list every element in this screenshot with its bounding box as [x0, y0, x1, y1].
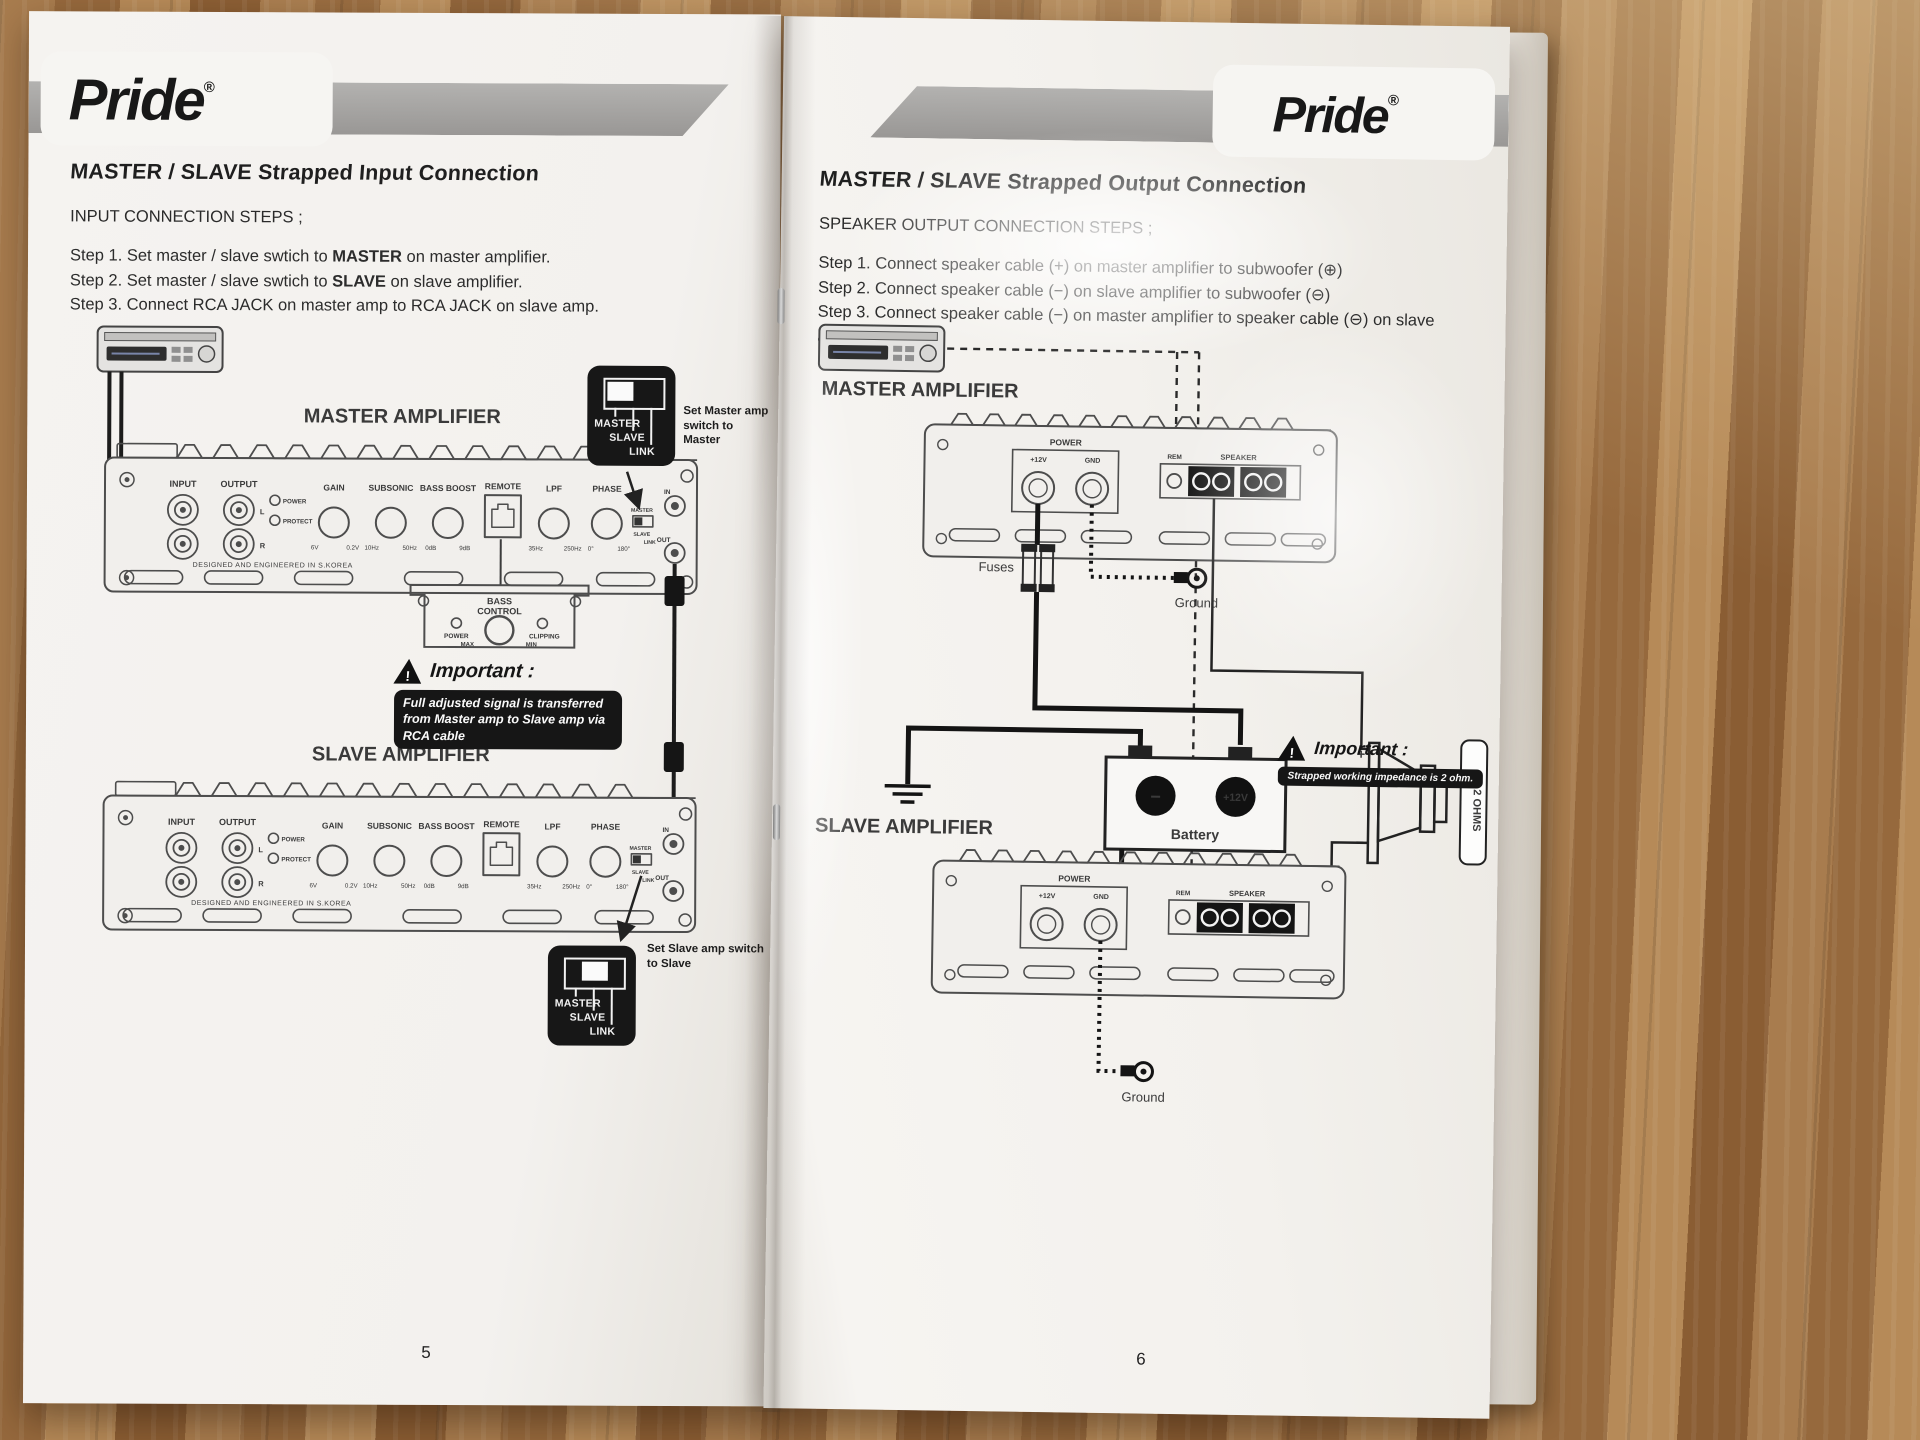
step-1: Step 1. Set master / slave swtich to MAS… — [70, 243, 730, 270]
manual-page-5: Pride® MASTER / SLAVE Strapped Input Con… — [23, 11, 781, 1406]
switch-detail-master: MASTER SLAVE LINK — [587, 366, 675, 466]
manual-page-6: Pride® MASTER / SLAVE Strapped Output Co… — [763, 16, 1510, 1419]
input-wiring-diagram: INPUT OUTPUT L R POWER — [23, 311, 780, 1364]
slave-amplifier-drawing — [932, 849, 1346, 998]
switch-label-link: LINK — [590, 1026, 616, 1038]
label-bc-power: POWER — [444, 633, 469, 640]
important-heading: ! Important : — [393, 659, 623, 685]
note-set-slave: Set Slave amp switch to Slave — [647, 942, 767, 972]
note-set-master: Set Master amp switch to Master — [683, 404, 773, 448]
staple — [777, 288, 784, 324]
master-amplifier-drawing — [923, 413, 1337, 562]
master-amplifier-label: MASTER AMPLIFIER — [821, 378, 1019, 403]
important-text: Strapped working impedance is 2 ohm. — [1278, 767, 1483, 789]
step-2: Step 2. Set master / slave swtich to SLA… — [70, 268, 730, 295]
switch-label-slave: SLAVE — [570, 1012, 606, 1024]
photo-of-manual: Pride® MASTER / SLAVE Strapped Input Con… — [0, 0, 1920, 1440]
battery-minus: − — [1150, 787, 1161, 807]
important-text: Full adjusted signal is transferred from… — [394, 690, 622, 750]
registered-mark: ® — [204, 79, 215, 96]
registered-mark: ® — [1388, 92, 1399, 109]
switch-label-master: MASTER — [555, 997, 601, 1009]
master-amplifier-label: MASTER AMPLIFIER — [304, 405, 502, 428]
pride-logo: Pride® — [1212, 64, 1495, 142]
label-bc-clipping: CLIPPING — [529, 633, 560, 640]
output-wiring-diagram: POWER +12V GND REM SPEAKER — [764, 316, 1506, 1382]
slave-amplifier-label: SLAVE AMPLIFIER — [815, 815, 994, 840]
label-bc-min: MIN — [526, 642, 537, 648]
page-title: MASTER / SLAVE Strapped Input Connection — [69, 159, 540, 186]
switch-label-slave: SLAVE — [609, 432, 645, 444]
bass-control-line2: CONTROL — [477, 606, 522, 616]
fuses-label: Fuses — [978, 559, 1014, 575]
power-cable — [1037, 504, 1038, 545]
ground-label: Ground — [1121, 1089, 1165, 1105]
important-heading: ! Important : — [1277, 736, 1484, 764]
label-bc-max: MAX — [461, 642, 474, 648]
section-subtitle: SPEAKER OUTPUT CONNECTION STEPS ; — [819, 215, 1153, 239]
warning-icon: ! — [393, 659, 423, 684]
slave-amplifier-drawing — [103, 782, 696, 933]
brand-logo-tab: Pride® — [1212, 64, 1495, 160]
switch-label-master: MASTER — [594, 418, 640, 430]
chassis-ground-symbol — [884, 786, 930, 803]
important-note-input: ! Important : Full adjusted signal is tr… — [394, 659, 622, 750]
ring-terminal-stem — [1174, 572, 1188, 583]
switch-frame — [564, 958, 626, 990]
master-amplifier-drawing — [105, 444, 698, 595]
battery-label: Battery — [1171, 826, 1220, 843]
instruction-steps: Step 1. Set master / slave swtich to MAS… — [70, 243, 730, 319]
ring-terminal-stem — [1120, 1065, 1134, 1076]
switch-label-link: LINK — [629, 446, 655, 458]
switch-knob-slave-position — [582, 962, 608, 981]
pride-logo: Pride® — [41, 51, 333, 130]
bass-control-line1: BASS — [487, 596, 512, 606]
switch-detail-slave: MASTER SLAVE LINK — [548, 945, 636, 1045]
switch-frame — [603, 378, 665, 410]
section-subtitle: INPUT CONNECTION STEPS ; — [70, 207, 303, 227]
brand-logo-tab: Pride® — [40, 51, 332, 146]
important-note-output: ! Important : Strapped working impedance… — [1278, 736, 1484, 789]
switch-knob-master-position — [607, 382, 633, 401]
page-title: MASTER / SLAVE Strapped Output Connectio… — [819, 167, 1308, 199]
warning-icon: ! — [1277, 736, 1307, 761]
staple — [773, 804, 780, 840]
battery-plus: +12V — [1223, 792, 1248, 804]
manual-booklet: Pride® MASTER / SLAVE Strapped Input Con… — [20, 10, 1514, 1419]
battery-drawing: − +12V Battery — [1105, 745, 1287, 852]
